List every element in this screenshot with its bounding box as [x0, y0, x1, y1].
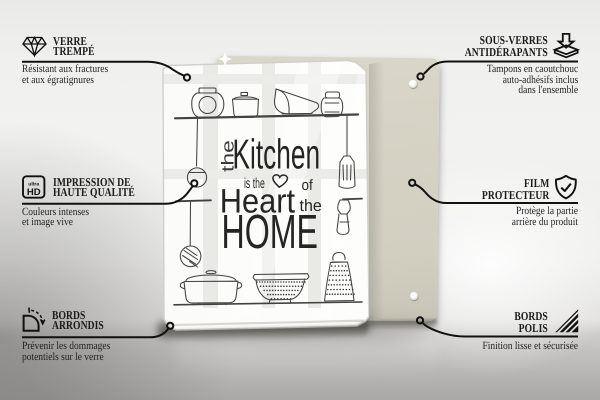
svg-text:Kitchen: Kitchen [233, 131, 321, 178]
svg-text:the: the [218, 140, 238, 172]
svg-text:HOME: HOME [222, 206, 318, 259]
svg-text:of: of [302, 177, 314, 194]
svg-text:HD: HD [27, 187, 41, 198]
